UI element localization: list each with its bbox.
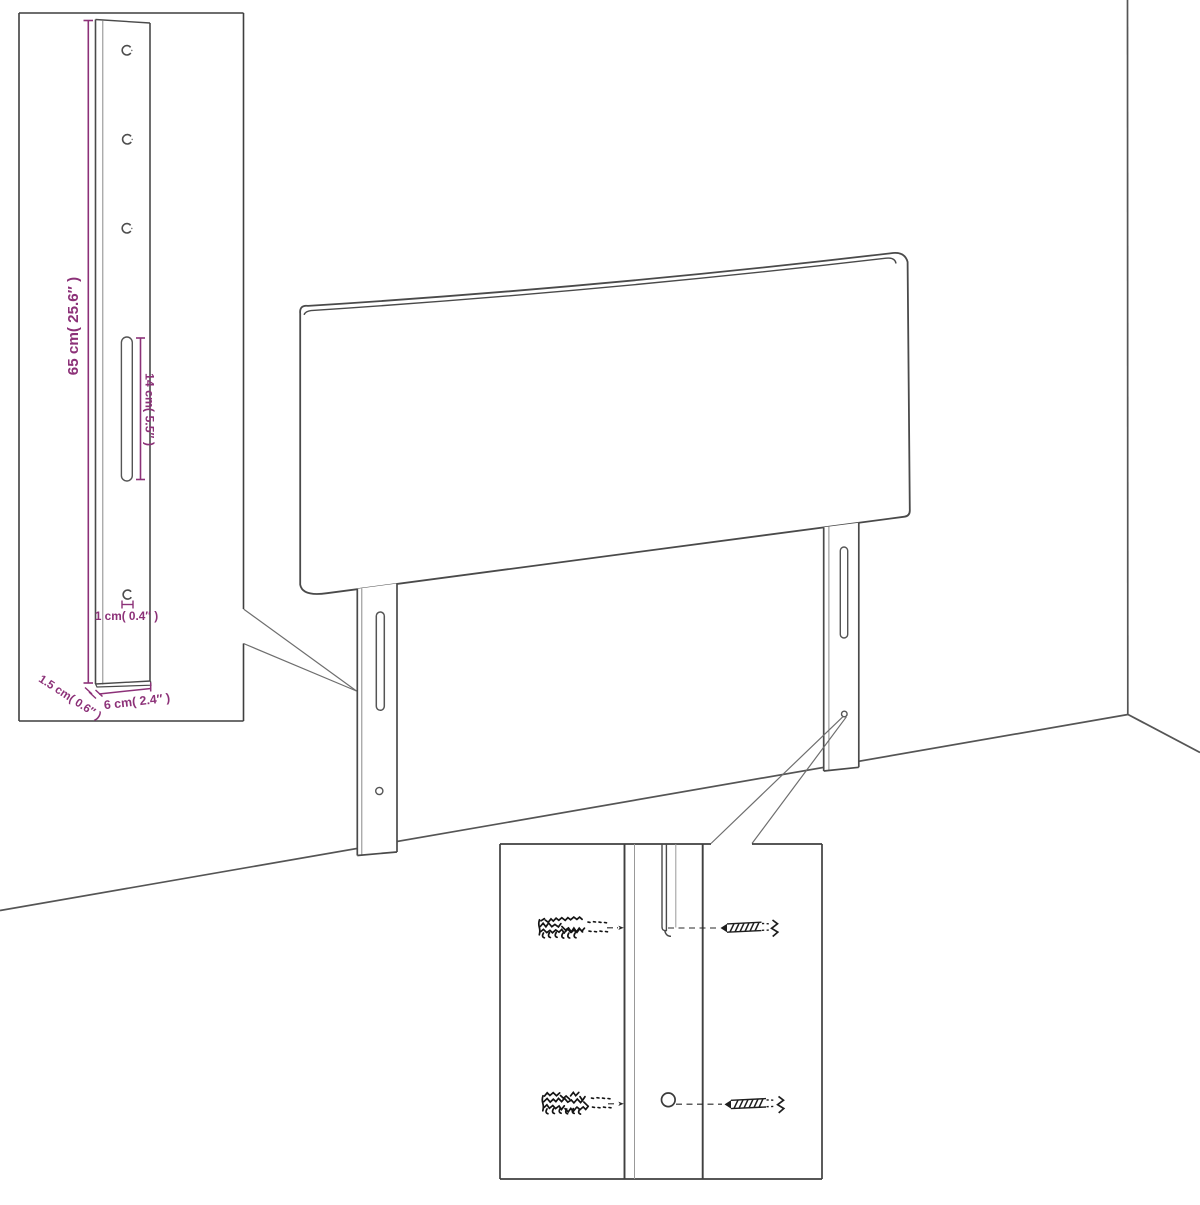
svg-text:14 cm( 5.5″ ): 14 cm( 5.5″ ): [143, 373, 157, 446]
svg-text:65 cm( 25.6″ ): 65 cm( 25.6″ ): [65, 277, 82, 375]
svg-text:1 cm( 0.4″ ): 1 cm( 0.4″ ): [95, 609, 158, 623]
